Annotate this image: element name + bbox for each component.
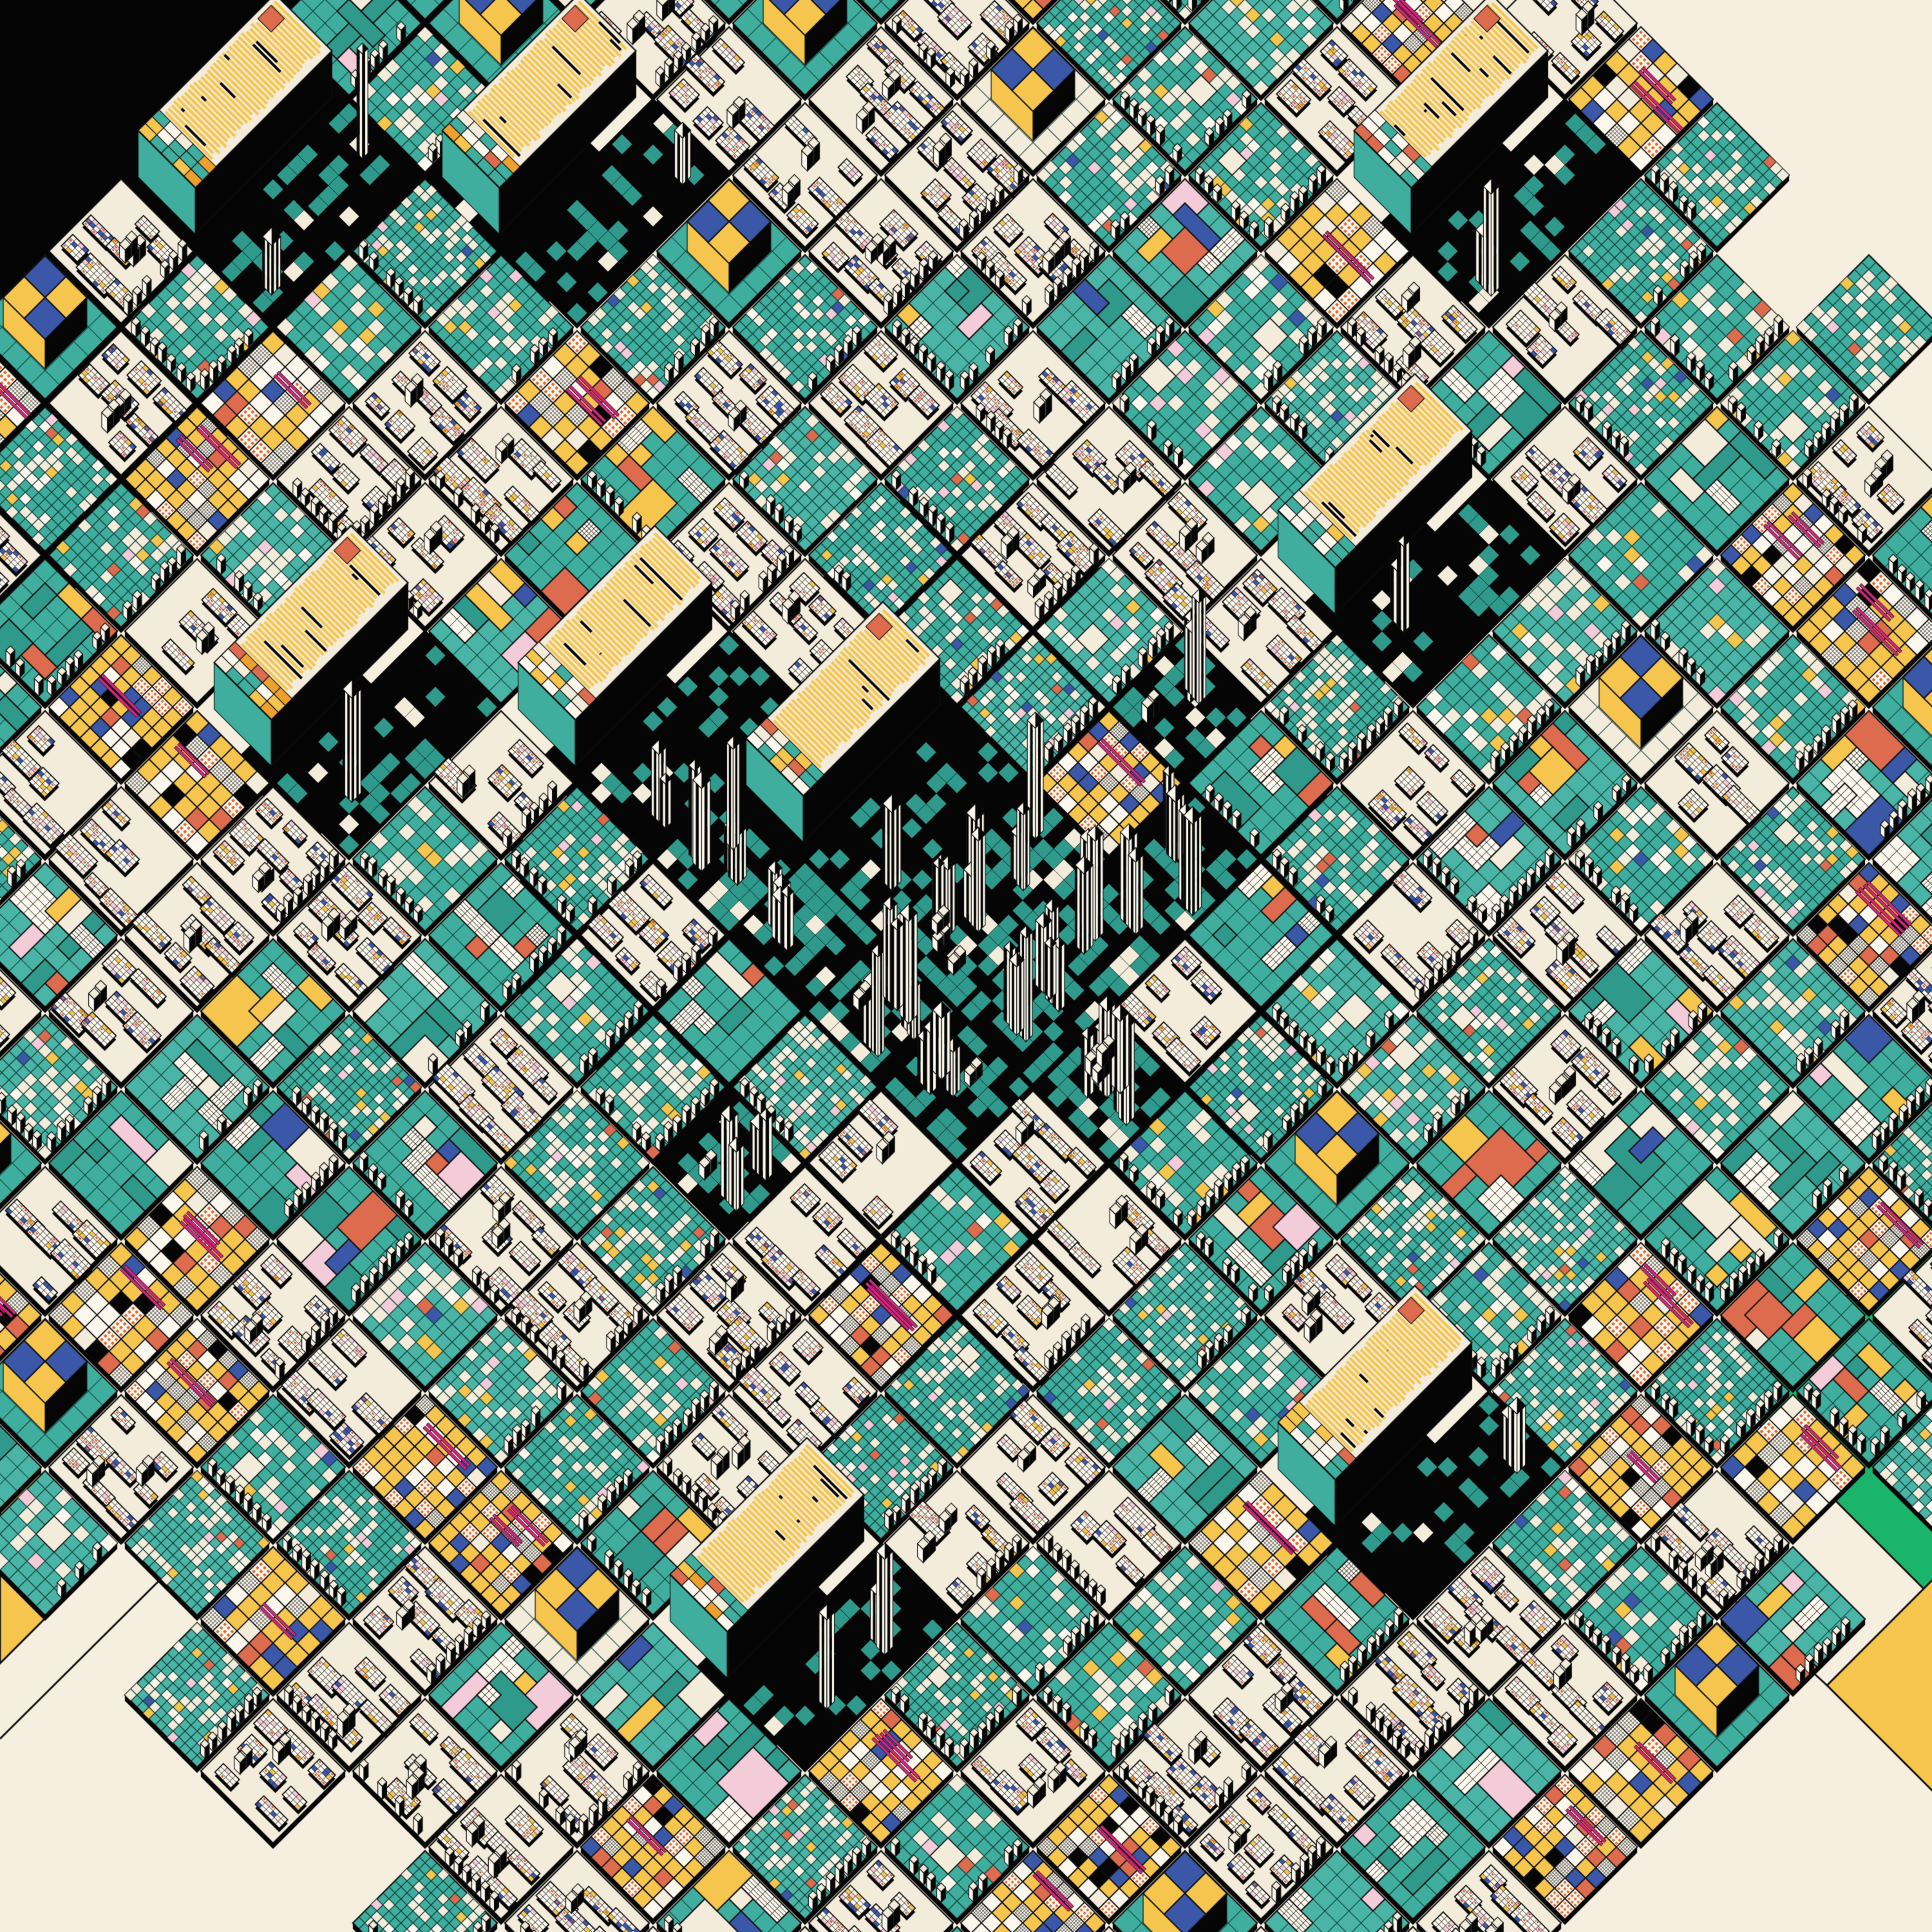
generative-city-canvas — [0, 0, 1932, 1932]
artwork-frame — [0, 0, 1932, 1932]
